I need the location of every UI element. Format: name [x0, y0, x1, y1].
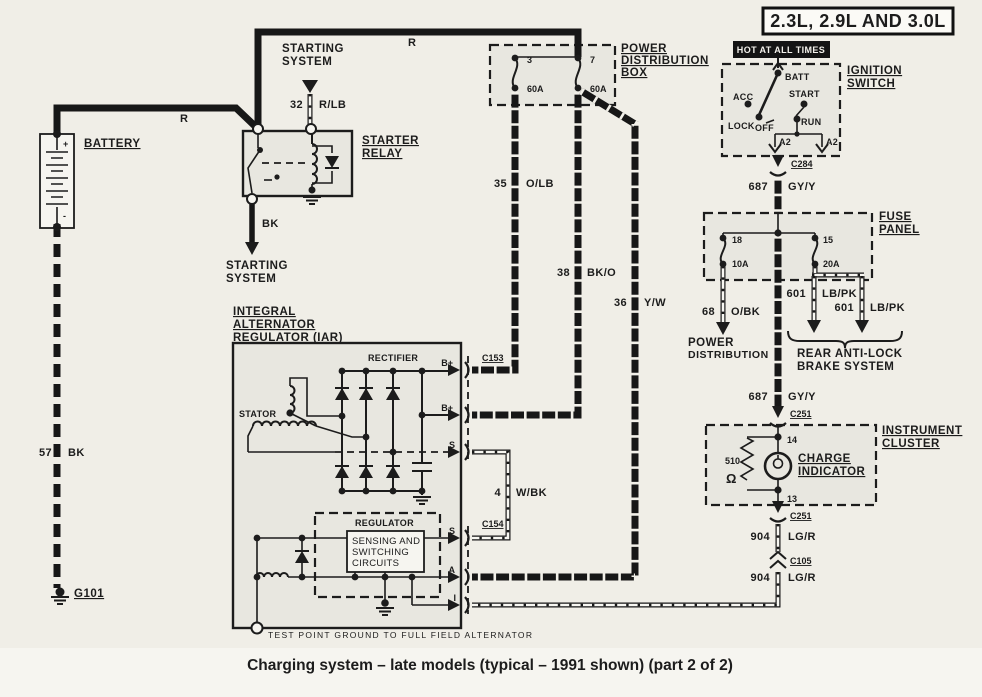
fuse3-rating: 60A [527, 84, 544, 94]
wire35-color: O/LB [526, 178, 554, 190]
wire36-circuit: 36 [614, 297, 627, 309]
iar-line3: REGULATOR (IAR) [233, 332, 343, 344]
battery-label: BATTERY [84, 138, 141, 150]
fuse7-id: 7 [590, 55, 595, 65]
g101-label: G101 [74, 588, 104, 600]
ignition-line1: IGNITION [847, 65, 902, 77]
test-point-terminal [252, 623, 263, 634]
wire687a-color: GY/Y [788, 181, 816, 193]
starter-relay-box [243, 131, 352, 196]
cluster-pin14: 14 [787, 435, 797, 445]
wire57-color: BK [68, 447, 85, 459]
ignition-line2: SWITCH [847, 78, 895, 90]
terminal-bplus1: B+ [441, 358, 453, 368]
wire36-color: Y/W [644, 297, 666, 309]
battery-minus: - [63, 211, 66, 221]
wire32-circuit: 32 [290, 99, 303, 111]
starting-bottom-line1: STARTING [226, 260, 288, 272]
fuse-panel-box [704, 213, 872, 280]
wire687b-circuit: 687 [748, 391, 768, 403]
c251-top-label: C251 [790, 409, 812, 419]
diagram-caption: Charging system – late models (typical –… [247, 657, 733, 674]
test-point-note: TEST POINT GROUND TO FULL FIELD ALTERNAT… [268, 630, 533, 640]
wire601b-color: LB/PK [870, 302, 905, 314]
c105-label: C105 [790, 556, 812, 566]
c153-label: C153 [482, 353, 504, 363]
wire-r1-label: R [180, 113, 188, 125]
wire-bk-label: BK [262, 218, 279, 230]
wire904a-color: LG/R [788, 531, 816, 543]
cluster-line1: INSTRUMENT [882, 425, 962, 437]
wire4-color: W/BK [516, 487, 547, 499]
ignition-a2-right: A2 [826, 137, 838, 147]
wire57-circuit: 57 [39, 447, 52, 459]
wire687b-color: GY/Y [788, 391, 816, 403]
sensing-line3: CIRCUITS [352, 558, 399, 569]
terminal-i: I [453, 593, 456, 603]
resistor-unit: Ω [726, 471, 736, 486]
c284-label: C284 [791, 159, 813, 169]
ignition-acc: ACC [733, 92, 754, 102]
sensing-line2: SWITCHING [352, 547, 409, 558]
hot-banner-label: HOT AT ALL TIMES [737, 45, 825, 55]
terminal-s1: S [449, 440, 455, 450]
sensing-line1: SENSING AND [352, 536, 420, 547]
wire601a-color: LB/PK [822, 288, 857, 300]
ignition-a2-left: A2 [779, 137, 791, 147]
terminal-bplus2: B+ [441, 403, 453, 413]
ignition-run: RUN [801, 117, 821, 127]
starting-top-line2: SYSTEM [282, 56, 332, 68]
charge-indicator-line2: INDICATOR [798, 466, 866, 478]
dest-rabs-line1: REAR ANTI-LOCK [797, 348, 903, 360]
charging-system-diagram: 2.3L, 2.9L AND 3.0L HOT AT ALL TIMES BAT… [0, 0, 982, 697]
wiring-diagram-page: 2.3L, 2.9L AND 3.0L HOT AT ALL TIMES BAT… [0, 0, 982, 697]
wire687a-circuit: 687 [748, 181, 768, 193]
starter-relay-line2: RELAY [362, 148, 402, 160]
power-box-line1: POWER [621, 43, 667, 55]
fuse-panel-line1: FUSE [879, 211, 912, 223]
power-distribution-box [490, 45, 615, 105]
iar-line1: INTEGRAL [233, 306, 296, 318]
wire32-color: R/LB [319, 99, 346, 111]
terminal-a: A [449, 565, 456, 575]
regulator-label: REGULATOR [355, 518, 414, 528]
engine-title: 2.3L, 2.9L AND 3.0L [770, 11, 946, 31]
stator-label: STATOR [239, 409, 276, 419]
wire601b-circuit: 601 [834, 302, 854, 314]
wire68-color: O/BK [731, 306, 760, 318]
dest-power-line1: POWER [688, 337, 734, 349]
fuse3-id: 3 [527, 55, 532, 65]
fuse18-id: 18 [732, 235, 742, 245]
fuse15-rating: 20A [823, 259, 840, 269]
power-box-line3: BOX [621, 67, 647, 79]
rectifier-label: RECTIFIER [368, 353, 418, 363]
battery-plus: + [63, 139, 68, 149]
dest-power-line2: DISTRIBUTION [688, 349, 769, 361]
resistor-value: 510 [725, 456, 740, 466]
starting-bottom-line2: SYSTEM [226, 273, 276, 285]
wire904b-circuit: 904 [750, 572, 770, 584]
ignition-batt: BATT [785, 72, 810, 82]
starting-top-line1: STARTING [282, 43, 344, 55]
cluster-line2: CLUSTER [882, 438, 940, 450]
charge-indicator-line1: CHARGE [798, 453, 851, 465]
wire38-color: BK/O [587, 267, 616, 279]
ignition-off: OFF [755, 123, 774, 133]
wire-r2-label: R [408, 37, 416, 49]
fuse-panel-line2: PANEL [879, 224, 920, 236]
fuse18-rating: 10A [732, 259, 749, 269]
ignition-lock: LOCK [728, 121, 755, 131]
power-box-line2: DISTRIBUTION [621, 55, 709, 67]
ignition-start: START [789, 89, 820, 99]
wire4-circuit: 4 [494, 487, 501, 499]
c251-bottom-label: C251 [790, 511, 812, 521]
wire38-circuit: 38 [557, 267, 570, 279]
starter-relay-line1: STARTER [362, 135, 419, 147]
wire904b-color: LG/R [788, 572, 816, 584]
wire35-circuit: 35 [494, 178, 507, 190]
cluster-pin13: 13 [787, 494, 797, 504]
terminal-s2: S [449, 526, 455, 536]
dest-rabs-line2: BRAKE SYSTEM [797, 361, 894, 373]
fuse7-rating: 60A [590, 84, 607, 94]
c154-label: C154 [482, 519, 504, 529]
wire601a-circuit: 601 [786, 288, 806, 300]
wire904a-circuit: 904 [750, 531, 770, 543]
fuse15-id: 15 [823, 235, 833, 245]
iar-line2: ALTERNATOR [233, 319, 315, 331]
wire68-circuit: 68 [702, 306, 715, 318]
